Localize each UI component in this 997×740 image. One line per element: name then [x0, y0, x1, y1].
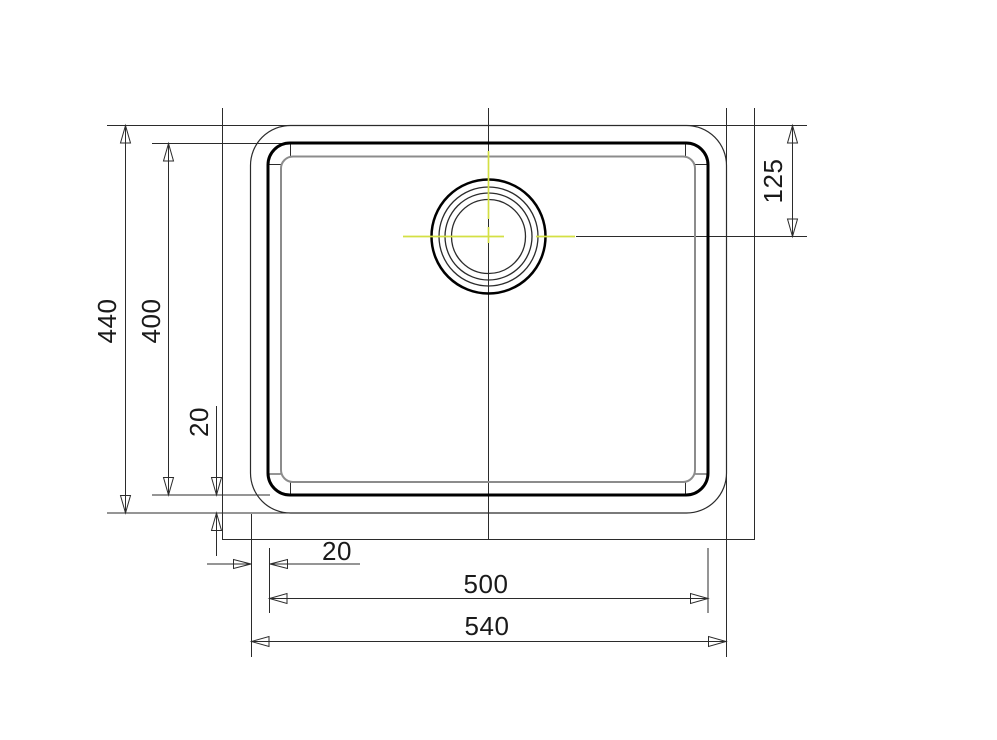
dimension-labels: 440 400 20 125 20 500 540 [92, 159, 788, 641]
dim-440 [121, 126, 131, 514]
extension-lines [107, 126, 807, 658]
dim-20-left-label: 20 [184, 407, 214, 437]
dim-540-label: 540 [465, 611, 510, 641]
dim-500-label: 500 [464, 569, 509, 599]
dim-125 [788, 126, 798, 237]
sink-dimension-drawing: 440 400 20 125 20 500 540 [0, 0, 997, 740]
dim-125-label: 125 [758, 159, 788, 204]
dim-440-label: 440 [92, 299, 122, 344]
drain-centermark [403, 151, 575, 243]
drawing-canvas: 440 400 20 125 20 500 540 [0, 0, 997, 740]
dim-400-label: 400 [136, 299, 166, 344]
dim-20-bottom-label: 20 [322, 536, 352, 566]
